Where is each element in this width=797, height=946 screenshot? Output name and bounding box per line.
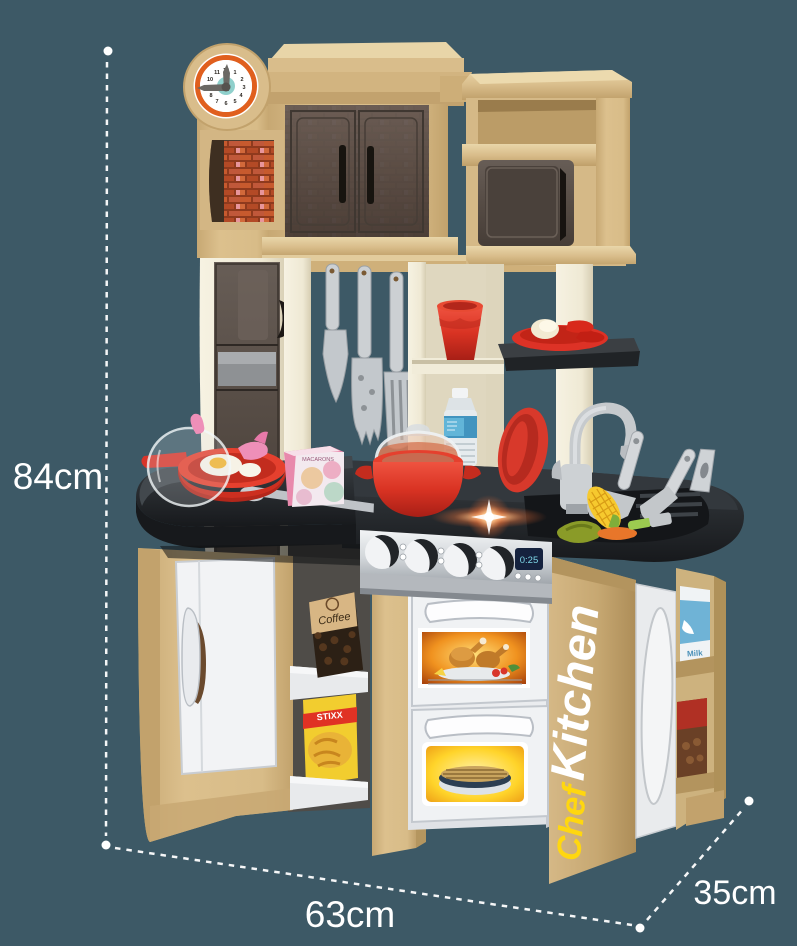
svg-text:35cm: 35cm [693,874,776,912]
svg-text:63cm: 63cm [305,894,395,935]
svg-text:2: 2 [240,77,243,83]
svg-text:6: 6 [224,101,227,107]
svg-text:Chef: Chef [550,780,595,862]
svg-text:3: 3 [242,85,245,91]
svg-text:7: 7 [215,99,218,105]
svg-text:10: 10 [207,77,213,83]
svg-text:8: 8 [209,93,212,99]
svg-text:84cm: 84cm [13,456,103,497]
svg-text:5: 5 [233,99,236,105]
svg-text:MACARONS: MACARONS [302,457,334,463]
svg-text:11: 11 [214,70,220,76]
svg-text:Milk: Milk [687,648,704,658]
svg-text:0:25: 0:25 [520,555,539,566]
svg-text:1: 1 [233,70,236,76]
